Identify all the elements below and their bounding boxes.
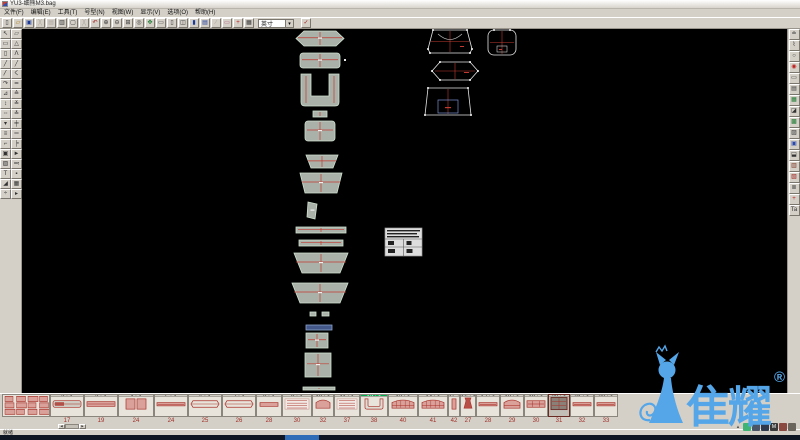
menu-item-4[interactable]: 视图(W) [112, 9, 134, 17]
tray-app-icon[interactable] [752, 423, 760, 431]
piece-thumbnail-strip: 2 : 1173 : 1194 : 1245 : 1246 : 1257 : 1… [0, 393, 800, 424]
cut-button[interactable]: ╳ [35, 18, 45, 28]
wechat-icon[interactable] [743, 423, 751, 431]
draft-tool-17[interactable]: ≛ [11, 109, 22, 119]
pattern-piece[interactable] [306, 155, 338, 168]
piece-shape [155, 397, 187, 416]
piece-shape [85, 397, 117, 416]
drawing-canvas[interactable] [22, 29, 787, 393]
thumbnail-box[interactable]: 6 : 1 [188, 394, 222, 417]
pattern-piece[interactable] [296, 227, 346, 233]
measure-button[interactable]: ▭ [222, 18, 232, 28]
piece-thumbnail-13[interactable]: 13 : 140 [388, 394, 418, 425]
chevron-down-icon[interactable]: ▾ [285, 20, 293, 27]
copy-button[interactable]: ▤ [46, 18, 56, 28]
pattern-piece[interactable] [306, 325, 332, 330]
draft-tool-8[interactable]: 〳 [0, 69, 11, 79]
piece-thumbnail-15[interactable]: 15 : 142 [448, 394, 460, 425]
draft-tool-2[interactable]: ▭ [0, 39, 11, 49]
draft-tool-7[interactable]: ╱ [11, 59, 22, 69]
zoom-window-button[interactable]: ⊞ [123, 18, 133, 28]
piece-tool-9[interactable]: ▨ [789, 128, 800, 139]
thumbnail-box[interactable]: 5 : 1 [154, 394, 188, 417]
menu-item-3[interactable]: 号型(N) [84, 9, 104, 17]
pattern-piece[interactable] [303, 387, 335, 390]
pattern-piece[interactable] [305, 121, 335, 141]
app-icon [2, 1, 8, 7]
window-title: YU3-细熊M3.bag [10, 0, 56, 9]
pan-button[interactable]: ✥ [145, 18, 155, 28]
title-bar: YU3-细熊M3.bag [0, 0, 800, 9]
piece-tool-14[interactable]: ≣ [789, 183, 800, 194]
thumbnail-box[interactable] [2, 394, 50, 417]
unit-value: 英寸 [259, 19, 285, 28]
menu-item-2[interactable]: 工具(T) [58, 9, 78, 17]
draft-tool-15[interactable]: ≚ [11, 99, 22, 109]
thumbnail-box[interactable]: 20 : 1 [548, 394, 570, 417]
thumbnail-box[interactable]: 9 : 1 [282, 394, 312, 417]
input-method-icon[interactable]: M [770, 423, 778, 431]
thumbnail-box[interactable]: 10 : 1 [312, 394, 334, 417]
piece-thumbnail-17[interactable]: 17 : 128 [476, 394, 500, 425]
save-button[interactable]: ▣ [24, 18, 34, 28]
menu-item-7[interactable]: 帮助(H) [195, 9, 215, 17]
tray-app-icon[interactable] [761, 423, 769, 431]
piece-tool-11[interactable]: ⬓ [789, 150, 800, 161]
tray-expand-icon[interactable]: ▴ [734, 423, 742, 431]
thumbnail-box[interactable]: 2 : 1 [50, 394, 84, 417]
thumbnail-box[interactable]: 16 : 1 [460, 394, 476, 417]
piece-tool-13[interactable]: ▧ [789, 172, 800, 183]
draft-tool-20[interactable]: ≡ [0, 129, 11, 139]
piece-thumbnail-8[interactable]: 8 : 128 [256, 394, 282, 425]
thumbnail-box[interactable]: 19 : 1 [524, 394, 548, 417]
window-doc-button[interactable]: ▤ [200, 18, 210, 28]
piece-thumbnail-19[interactable]: 19 : 130 [524, 394, 548, 425]
draft-tool-6[interactable]: ╱ [0, 59, 11, 69]
piece-thumbnail-21[interactable]: 21 : 132 [570, 394, 594, 425]
thumbnail-box[interactable]: 4 : 1 [118, 394, 154, 417]
piece-shape [525, 397, 547, 416]
piece-shape [51, 397, 83, 416]
thumbnail-box[interactable]: 21 : 1 [570, 394, 594, 417]
draft-tool-21[interactable]: ═ [11, 129, 22, 139]
piece-thumbnail-14[interactable]: 14 : 141 [418, 394, 448, 425]
menu-item-6[interactable]: 选项(O) [167, 9, 188, 17]
draft-tool-25[interactable]: ► [11, 149, 22, 159]
draft-tool-11[interactable]: ≃ [11, 79, 22, 89]
menu-bar: 文件(F)编辑(E)工具(T)号型(N)视图(W)显示(V)选项(O)帮助(H) [0, 9, 800, 17]
thumbnail-box[interactable]: 14 : 1 [418, 394, 448, 417]
piece-shape [501, 397, 523, 416]
system-tray: ▴M [734, 423, 796, 431]
piece-thumbnail-16[interactable]: 16 : 127 [460, 394, 476, 425]
draft-tool-31[interactable]: ▦ [11, 179, 22, 189]
open-button[interactable]: ▱ [13, 18, 23, 28]
piece-shape [335, 397, 359, 416]
piece-tool-5[interactable]: ▤ [789, 84, 800, 95]
piece-shape [595, 397, 617, 416]
print-preview-button[interactable]: ▢ [68, 18, 78, 28]
menu-item-0[interactable]: 文件(F) [4, 9, 24, 17]
draft-tool-18[interactable]: ▾ [0, 119, 11, 129]
left-tool-palette: ↖▱▭△▯Λ╱╱〳く↷≃⊿≙↕≚╌≛▾╪≡═⌐╞▣►▨≕T▪◢▦÷▸ [0, 29, 22, 393]
piece-shape [461, 397, 475, 416]
undo-button[interactable]: ↶ [90, 18, 100, 28]
piece-tool-2[interactable]: ○ [789, 51, 800, 62]
draft-tool-10[interactable]: ↷ [0, 79, 11, 89]
piece-tool-10[interactable]: ▣ [789, 139, 800, 150]
thumbnail-box[interactable]: 3 : 1 [84, 394, 118, 417]
taskbar-active-app[interactable] [285, 435, 319, 440]
piece-tool-8[interactable]: ▩ [789, 117, 800, 128]
draft-tool-9[interactable]: く [11, 69, 22, 79]
piece-thumbnail-1[interactable] [2, 394, 50, 425]
piece-thumbnail-2[interactable]: 2 : 117 [50, 394, 84, 425]
info-table [385, 228, 422, 256]
pattern-canvas-svg[interactable] [22, 29, 786, 393]
piece-shape [313, 397, 333, 416]
menu-item-5[interactable]: 显示(V) [140, 9, 160, 17]
grid-table-button[interactable]: ▦ [244, 18, 254, 28]
piece-shape [119, 397, 153, 416]
pattern-piece[interactable] [307, 202, 317, 219]
piece-shape [361, 397, 387, 416]
draft-tool-4[interactable]: ▯ [0, 49, 11, 59]
thumbnail-box[interactable]: 7 : 1 [222, 394, 256, 417]
tray-app-icon[interactable] [788, 423, 796, 431]
pattern-piece[interactable] [292, 283, 348, 303]
pattern-piece-outline[interactable] [424, 87, 472, 116]
piece-thumbnail-5[interactable]: 5 : 124 [154, 394, 188, 425]
pattern-piece[interactable] [296, 31, 344, 46]
pattern-piece[interactable] [300, 53, 340, 68]
pattern-piece[interactable] [300, 173, 342, 193]
delete-button[interactable]: ╳ [79, 18, 89, 28]
pattern-piece[interactable] [301, 74, 339, 106]
pattern-piece[interactable] [305, 353, 331, 377]
window-frame-button[interactable]: ▯ [167, 18, 177, 28]
piece-shape [283, 397, 311, 416]
piece-thumbnail-4[interactable]: 4 : 124 [118, 394, 154, 425]
pattern-piece-outline[interactable] [431, 61, 479, 81]
pattern-piece[interactable] [294, 253, 348, 273]
piece-tool-1[interactable]: ⌇ [789, 40, 800, 51]
draft-tool-5[interactable]: Λ [11, 49, 22, 59]
piece-tool-0[interactable]: ≐ [789, 29, 800, 40]
draft-tool-33[interactable]: ▸ [11, 189, 22, 199]
pattern-piece[interactable] [322, 312, 329, 316]
zoom-in-button[interactable]: ⊕ [101, 18, 111, 28]
draft-tool-0[interactable]: ↖ [0, 29, 11, 39]
main-toolbar: ▯▱▣╳▤▥▢╳↶⊕⊖⊞◎✥▭▯◫▮▤∕▭+▦ 英寸 ▾ ✓ [0, 17, 800, 29]
piece-thumbnail-12[interactable]: 12 : 138 [360, 394, 388, 425]
slash-button[interactable]: ∕ [211, 18, 221, 28]
taskbar[interactable] [0, 435, 800, 440]
piece-tool-16[interactable]: Ta [789, 205, 800, 216]
piece-shape [389, 397, 417, 416]
piece-shape [189, 397, 221, 416]
main-area: ↖▱▭△▯Λ╱╱〳く↷≃⊿≙↕≚╌≛▾╪≡═⌐╞▣►▨≕T▪◢▦÷▸ ≐⌇○◉▭… [0, 29, 800, 393]
piece-thumbnail-9[interactable]: 9 : 130 [282, 394, 312, 425]
unit-combobox[interactable]: 英寸 ▾ [258, 19, 294, 28]
piece-thumbnail-7[interactable]: 7 : 126 [222, 394, 256, 425]
piece-thumbnail-6[interactable]: 6 : 125 [188, 394, 222, 425]
draft-tool-26[interactable]: ▨ [0, 159, 11, 169]
piece-shape [571, 397, 593, 416]
draft-tool-29[interactable]: ▪ [11, 169, 22, 179]
draft-tool-16[interactable]: ╌ [0, 109, 11, 119]
pattern-piece[interactable] [299, 240, 343, 246]
piece-shape [549, 397, 569, 416]
piece-thumbnail-18[interactable]: 18 : 129 [500, 394, 524, 425]
piece-tool-7[interactable]: ◪ [789, 106, 800, 117]
thumbnail-box[interactable]: 22 : 1 [594, 394, 618, 417]
piece-tool-12[interactable]: ▥ [789, 161, 800, 172]
zoom-out-button[interactable]: ⊖ [112, 18, 122, 28]
piece-shape [223, 397, 255, 416]
pattern-piece[interactable] [310, 312, 316, 316]
draft-tool-14[interactable]: ↕ [0, 99, 11, 109]
draft-tool-24[interactable]: ▣ [0, 149, 11, 159]
thumbnail-box[interactable]: 13 : 1 [388, 394, 418, 417]
pattern-piece[interactable] [313, 111, 327, 117]
piece-tool-3[interactable]: ◉ [789, 62, 800, 73]
tray-app-icon[interactable] [779, 423, 787, 431]
thumbnail-box[interactable]: 17 : 1 [476, 394, 500, 417]
pattern-piece-outline[interactable] [427, 29, 473, 54]
draft-tool-19[interactable]: ╪ [11, 119, 22, 129]
draft-tool-22[interactable]: ⌐ [0, 139, 11, 149]
draft-tool-27[interactable]: ≕ [11, 159, 22, 169]
draft-tool-28[interactable]: T [0, 169, 11, 179]
piece-thumbnail-3[interactable]: 3 : 119 [84, 394, 118, 425]
piece-shape [449, 397, 459, 416]
piece-shape [477, 397, 499, 416]
draft-tool-32[interactable]: ÷ [0, 189, 11, 199]
piece-tool-4[interactable]: ▭ [789, 73, 800, 84]
thumbnail-box[interactable]: 12 : 1 [360, 394, 388, 417]
right-tool-palette: ≐⌇○◉▭▤▦◪▩▨▣⬓▥▧≣+Ta [787, 29, 800, 393]
zoom-all-button[interactable]: ◎ [134, 18, 144, 28]
draft-tool-30[interactable]: ◢ [0, 179, 11, 189]
draft-tool-12[interactable]: ⊿ [0, 89, 11, 99]
draft-tool-23[interactable]: ╞ [11, 139, 22, 149]
piece-thumbnail-10[interactable]: 10 : 132 [312, 394, 334, 425]
thumbnail-box[interactable]: 18 : 1 [500, 394, 524, 417]
thumbnail-box[interactable]: 8 : 1 [256, 394, 282, 417]
new-button[interactable]: ▯ [2, 18, 12, 28]
draft-tool-1[interactable]: ▱ [11, 29, 22, 39]
window-single-button[interactable]: ▭ [156, 18, 166, 28]
piece-thumbnail-20[interactable]: 20 : 131 [548, 394, 570, 425]
piece-thumbnail-11[interactable]: 11 : 137 [334, 394, 360, 425]
plus-button[interactable]: + [233, 18, 243, 28]
draft-tool-13[interactable]: ≙ [11, 89, 22, 99]
piece-shape [419, 397, 447, 416]
thumbnail-box[interactable]: 11 : 1 [334, 394, 360, 417]
piece-tool-15[interactable]: + [789, 194, 800, 205]
pattern-piece-outline[interactable] [488, 29, 516, 55]
pattern-piece[interactable] [306, 333, 328, 348]
draft-tool-3[interactable]: △ [11, 39, 22, 49]
confirm-button[interactable]: ✓ [301, 18, 311, 28]
piece-shape [257, 397, 281, 416]
piece-tool-6[interactable]: ▦ [789, 95, 800, 106]
window-split-button[interactable]: ◫ [178, 18, 188, 28]
window-fill-button[interactable]: ▮ [189, 18, 199, 28]
menu-item-1[interactable]: 编辑(E) [31, 9, 51, 17]
print-button[interactable]: ▥ [57, 18, 67, 28]
piece-thumbnail-22[interactable]: 22 : 133 [594, 394, 618, 425]
thumbnail-box[interactable]: 15 : 1 [448, 394, 460, 417]
